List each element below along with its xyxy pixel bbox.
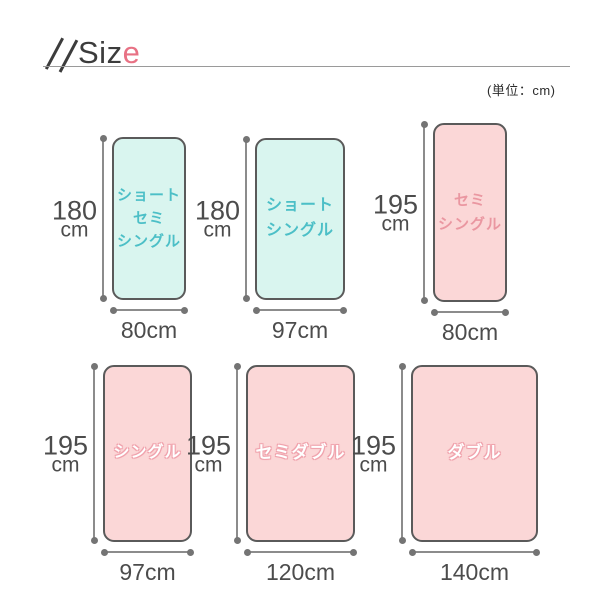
width-dimension-line <box>434 311 506 313</box>
bed-short-semi-single: 180 cm 80cm ショート セミ シングル <box>112 137 186 300</box>
bed-single: 195 cm 97cm シングル <box>103 365 192 542</box>
height-label: 195 cm <box>43 434 88 473</box>
page-title-accent: e <box>123 35 141 70</box>
width-dimension-line <box>256 309 344 311</box>
width-dimension-line <box>113 309 185 311</box>
bed-double: 195 cm 140cm ダブル <box>411 365 538 542</box>
height-dimension-line <box>236 366 238 541</box>
unit-note: (単位：cm) <box>487 80 556 99</box>
page-title-text: Siz <box>78 35 123 70</box>
bed-name-label: ショート シングル <box>266 194 334 244</box>
height-dimension-line <box>401 366 403 541</box>
height-label: 180 cm <box>195 199 240 238</box>
height-label: 180 cm <box>52 199 97 238</box>
width-label: 80cm <box>121 317 177 344</box>
header-underline <box>43 66 570 67</box>
height-label: 195 cm <box>351 434 396 473</box>
width-label: 120cm <box>266 559 335 586</box>
bed-name-label: セミ シングル <box>438 189 502 236</box>
width-label: 97cm <box>272 317 328 344</box>
bed-short-single: 180 cm 97cm ショート シングル <box>255 138 345 300</box>
height-dimension-line <box>245 139 247 299</box>
width-label: 140cm <box>440 559 509 586</box>
width-dimension-line <box>247 551 354 553</box>
width-label: 97cm <box>119 559 175 586</box>
height-dimension-line <box>93 366 95 541</box>
bed-name-label: ダブル <box>448 440 502 466</box>
width-dimension-line <box>104 551 191 553</box>
bed-name-label: シングル <box>113 441 181 466</box>
height-dimension-line <box>423 124 425 301</box>
slash-icon <box>59 40 78 73</box>
bed-name-label: ショート セミ シングル <box>117 184 181 254</box>
width-dimension-line <box>412 551 537 553</box>
bed-semi-double: 195 cm 120cm セミダブル <box>246 365 355 542</box>
width-label: 80cm <box>442 319 498 346</box>
bed-name-label: セミダブル <box>256 440 346 466</box>
height-label: 195 cm <box>186 434 231 473</box>
height-dimension-line <box>102 138 104 299</box>
height-label: 195 cm <box>373 193 418 232</box>
page-title: Size <box>78 37 140 68</box>
bed-semi-single: 195 cm 80cm セミ シングル <box>433 123 507 302</box>
